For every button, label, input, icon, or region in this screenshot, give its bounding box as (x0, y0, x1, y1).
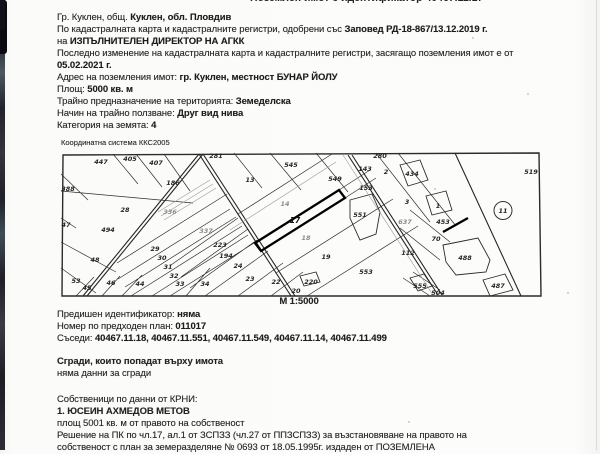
parcel-label: 447 (94, 158, 108, 166)
parcel-label: 405 (123, 155, 137, 163)
cadastral-map-labels: 4474054072815451861354928024341431533151… (61, 152, 538, 297)
owner-decision-line-1: Решение на ПК по чл.17, ал.1 от ЗСПЗЗ (ч… (57, 430, 467, 442)
parcel-label: 34 (200, 280, 210, 288)
parcel-label: 45 (82, 284, 92, 292)
parcel-label: 3 (405, 198, 410, 206)
parcel-label: 20 (291, 287, 301, 295)
parcel-label: 220 (304, 278, 318, 286)
cadastral-map: 4474054072815451861354928024341431533151… (58, 150, 550, 300)
owners-text-block: Собственици по данни от КРНИ: 1. ЮСЕИН А… (57, 394, 587, 454)
scan-speck (567, 292, 569, 294)
parcel-label: 336 (163, 208, 177, 216)
parcel-label: 13 (245, 176, 255, 184)
parcel-label: 553 (359, 268, 373, 276)
details-text-block: Предишен идентификатор: няма Номер по пр… (57, 309, 577, 349)
scan-right-edge (596, 0, 597, 450)
buildings-text-block: Сгради, които попадат върху имота няма д… (57, 356, 577, 382)
parcel-label: 637 (398, 218, 412, 226)
parcel-label: 545 (284, 161, 298, 169)
parcel-label: 194 (219, 252, 233, 260)
parcel-label: 47 (61, 221, 71, 229)
previous-identifier-line: Предишен идентификатор: няма (57, 309, 200, 321)
owner-name: 1. ЮСЕИН АХМЕДОВ МЕТОВ (57, 406, 190, 418)
parcel-label: 32 (169, 272, 179, 280)
parcel-label: 281 (209, 152, 223, 160)
document-text-line: Гр. Куклен, общ. Куклен, обл. Пловдив (57, 12, 231, 24)
parcel-label: 2 (384, 168, 389, 176)
cadastral-map-lines (61, 153, 541, 296)
parcel-label: 19 (321, 253, 331, 261)
intro-text-block: Гр. Куклен, общ. Куклен, обл. Пловдив По… (57, 8, 577, 136)
document-text-line: Площ: 5000 кв. м (57, 84, 133, 96)
document-text-line: на ИЗПЪЛНИТЕЛЕН ДИРЕКТОР НА АГКК (57, 36, 244, 48)
parcel-label: 407 (149, 159, 163, 167)
map-scale-label: М 1:5000 (234, 296, 364, 308)
document-text-line: Последно изменение на кадастралната карт… (57, 48, 513, 60)
parcel-label: 504 (431, 289, 445, 297)
parcel-label: 143 (358, 165, 372, 173)
parcel-label: 17 (290, 216, 301, 225)
parcel-label: 22 (271, 278, 281, 286)
document-text-line: По кадастралната карта и кадастралните р… (57, 24, 488, 36)
parcel-label: 33 (175, 280, 185, 288)
document-text-line: 05.02.2021 г. (57, 60, 112, 72)
parcel-label: 46 (106, 279, 116, 287)
parcel-label: 223 (213, 241, 227, 249)
buildings-value: няма данни за сгради (57, 368, 151, 380)
clipped-document-title: Поземлен имот с идентификатор 40467.11.1… (250, 0, 483, 4)
owner-decision-line-2: собственост с план за земеразделяне № 06… (57, 442, 435, 454)
coordinate-system-label: Координатна система ККС2005 (61, 137, 170, 149)
parcel-label: 494 (101, 226, 115, 234)
parcel-label: 29 (150, 245, 160, 253)
parcel-label: 280 (373, 152, 387, 160)
parcel-label: 487 (491, 282, 505, 290)
parcel-label: 11 (498, 207, 507, 215)
parcel-label: 549 (328, 175, 342, 183)
parcel-label: 337 (199, 227, 213, 235)
parcel-label: 555 (413, 282, 427, 290)
parcel-label: 31 (163, 263, 172, 271)
parcel-label: 70 (431, 235, 441, 243)
parcel-label: 53 (71, 277, 81, 285)
parcel-label: 28 (120, 206, 130, 214)
document-text-line: Категория на земята: 4 (57, 120, 156, 132)
buildings-title: Сгради, които попадат върху имота (57, 356, 223, 368)
owners-title: Собственици по данни от КРНИ: (57, 394, 197, 406)
scan-edge-artifact (0, 0, 5, 450)
parcel-label: 186 (166, 179, 180, 187)
parcel-label: 112 (401, 249, 415, 257)
parcel-label: 388 (61, 185, 75, 193)
neighbors-line: Съседи: 40467.11.18, 40467.11.551, 40467… (57, 333, 387, 345)
parcel-label: 434 (405, 170, 419, 178)
parcel-label: 519 (524, 168, 538, 176)
document-text-line: Трайно предназначение на територията: Зе… (57, 96, 291, 108)
scan-ink-blob (0, 0, 5, 30)
document-text-line: Адрес на поземления имот: гр. Куклен, ме… (57, 72, 337, 84)
parcel-label: 14 (280, 200, 290, 208)
parcel-label: 551 (353, 211, 367, 219)
parcel-label: 44 (135, 280, 145, 288)
owner-area-line: площ 5001 кв. м от правото на собственос… (57, 418, 244, 430)
parcel-label: 1 (436, 202, 441, 210)
parcel-label: 18 (301, 234, 311, 242)
parcel-label: 23 (245, 275, 255, 283)
scanned-document-page: { "header": { "clipped_line": "Поземлен … (0, 0, 600, 450)
parcel-label: 453 (436, 218, 450, 226)
parcel-label: 30 (157, 254, 167, 262)
document-text-line: Начин на трайно ползване: Друг вид нива (57, 108, 243, 120)
parcel-label: 24 (233, 262, 243, 270)
parcel-label: 153 (359, 184, 373, 192)
previous-plan-line: Номер по предходен план: 011017 (57, 321, 206, 333)
parcel-label: 48 (90, 256, 100, 264)
parcel-label: 488 (458, 254, 472, 262)
